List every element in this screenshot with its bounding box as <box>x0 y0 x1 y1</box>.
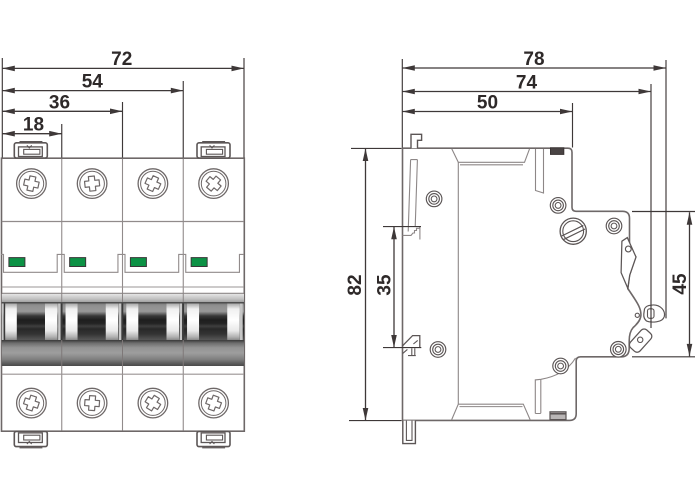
svg-text:36: 36 <box>49 92 70 113</box>
svg-text:82: 82 <box>345 274 366 295</box>
svg-text:78: 78 <box>523 49 544 70</box>
svg-text:54: 54 <box>82 72 104 93</box>
svg-text:45: 45 <box>670 273 691 295</box>
svg-text:74: 74 <box>516 72 538 93</box>
svg-text:50: 50 <box>477 93 498 114</box>
svg-text:72: 72 <box>111 49 132 70</box>
svg-text:35: 35 <box>375 274 396 296</box>
svg-text:18: 18 <box>23 115 44 136</box>
